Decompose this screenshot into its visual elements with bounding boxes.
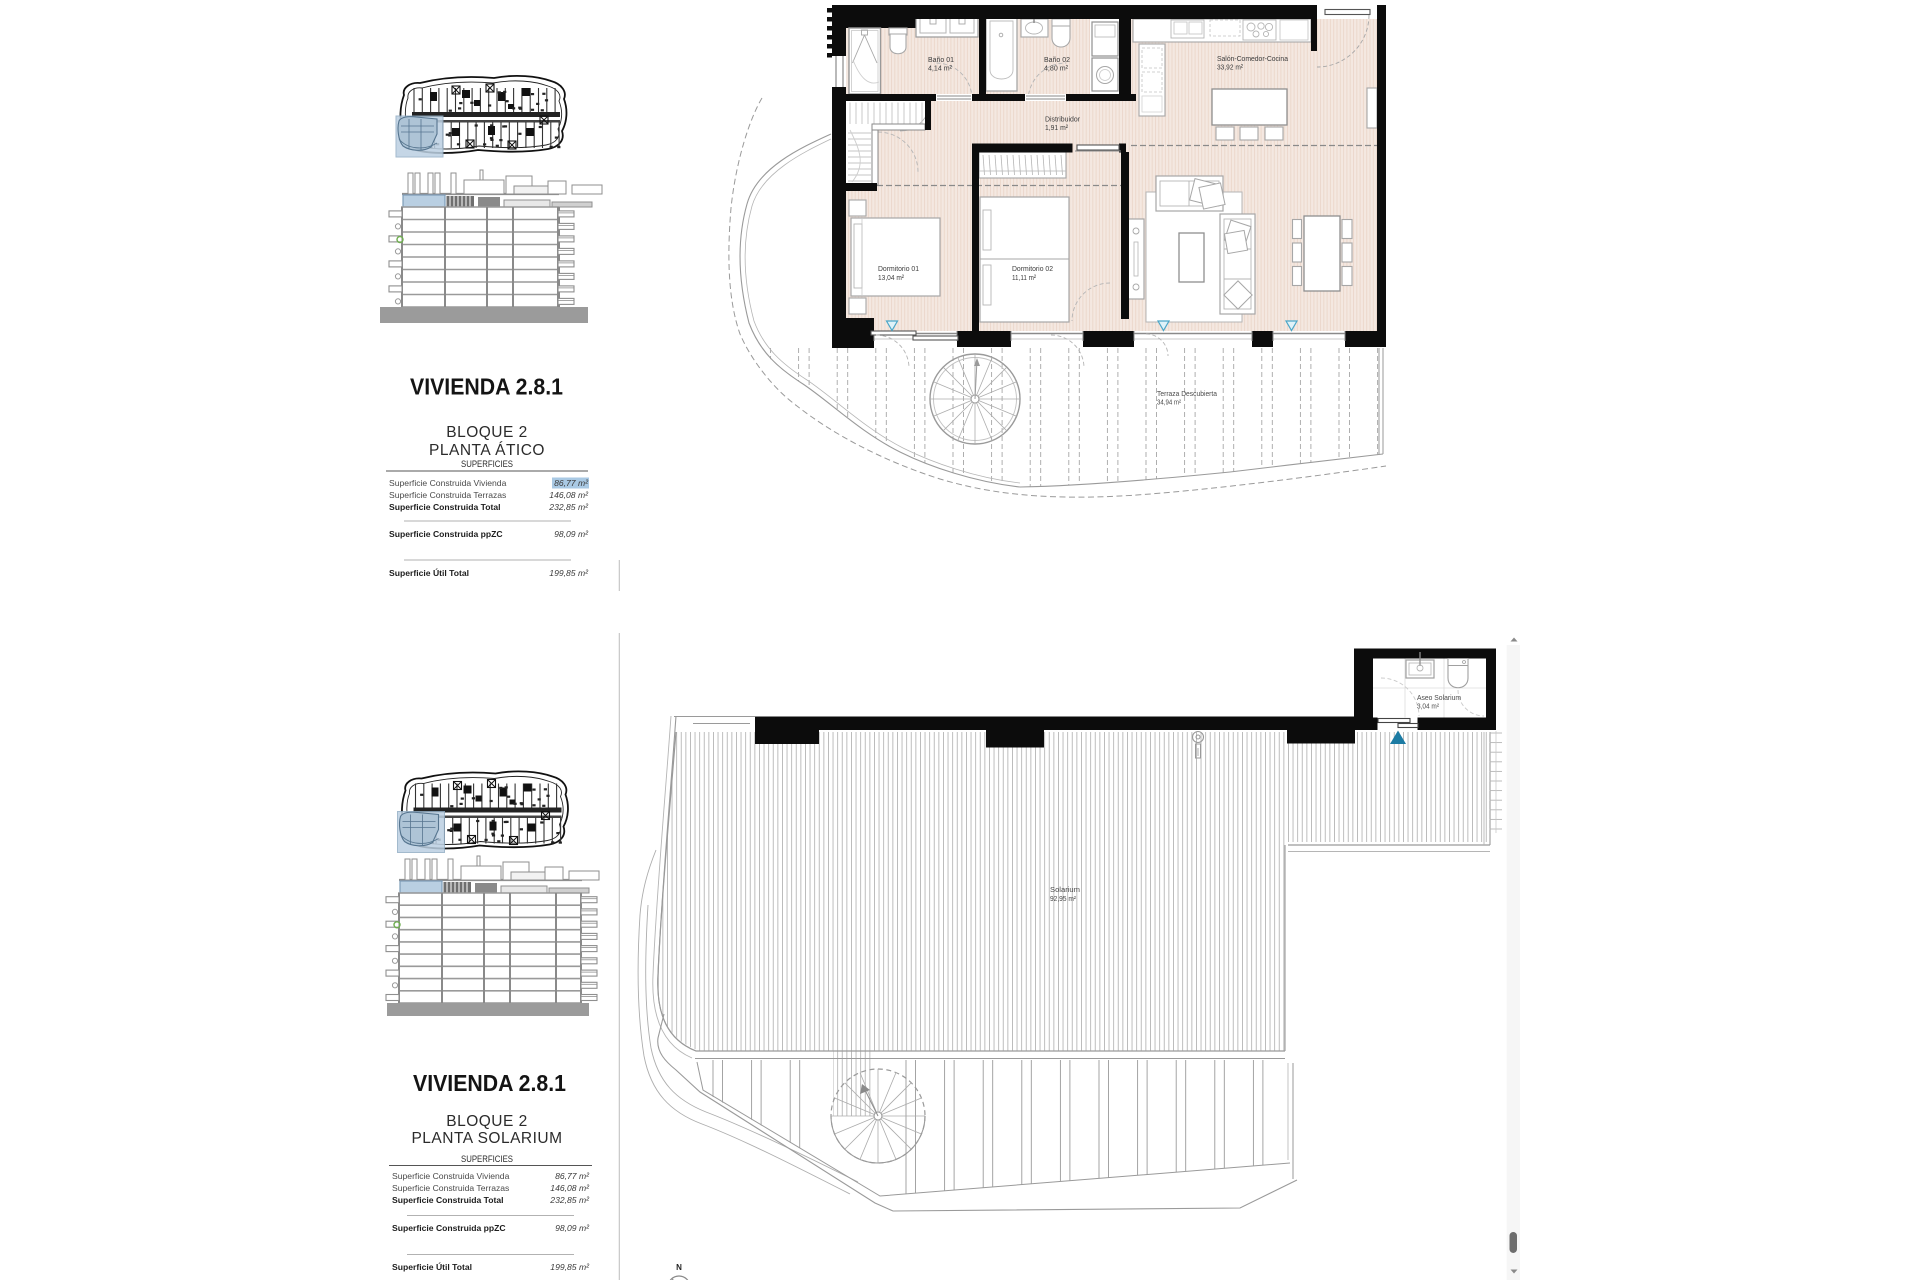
svg-text:3,04 m²: 3,04 m² [1417, 702, 1440, 711]
svg-text:Superficie Construida Terrazas: Superficie Construida Terrazas [389, 490, 506, 500]
svg-text:PLANTA ÁTICO: PLANTA ÁTICO [429, 442, 545, 459]
svg-text:Superficie Construida Terrazas: Superficie Construida Terrazas [392, 1183, 509, 1193]
svg-text:146,08 m²: 146,08 m² [550, 1183, 590, 1193]
svg-text:VIVIENDA 2.8.1: VIVIENDA 2.8.1 [413, 1070, 566, 1096]
svg-text:Solarium: Solarium [1050, 885, 1080, 894]
svg-text:232,85 m²: 232,85 m² [549, 1195, 590, 1205]
svg-text:Superficie Construida Total: Superficie Construida Total [389, 502, 501, 512]
svg-text:33,92 m²: 33,92 m² [1217, 63, 1243, 72]
svg-text:98,09 m²: 98,09 m² [555, 1223, 590, 1233]
svg-text:SUPERFICIES: SUPERFICIES [461, 1154, 513, 1164]
svg-text:86,77 m²: 86,77 m² [554, 478, 589, 488]
svg-text:98,09 m²: 98,09 m² [554, 529, 589, 539]
svg-text:Superficie Construida ppZC: Superficie Construida ppZC [392, 1223, 506, 1233]
svg-text:Superficie Construida ppZC: Superficie Construida ppZC [389, 529, 503, 539]
svg-text:BLOQUE 2: BLOQUE 2 [446, 424, 528, 441]
svg-text:Superficie Útil Total: Superficie Útil Total [392, 1261, 472, 1272]
svg-text:SUPERFICIES: SUPERFICIES [461, 459, 513, 469]
svg-text:4,14 m²: 4,14 m² [928, 64, 952, 73]
svg-text:Superficie Útil Total: Superficie Útil Total [389, 567, 469, 578]
svg-text:Dormitorio 02: Dormitorio 02 [1012, 264, 1053, 273]
svg-text:92,95 m²: 92,95 m² [1050, 894, 1076, 903]
svg-text:199,85 m²: 199,85 m² [549, 568, 589, 578]
svg-text:86,77 m²: 86,77 m² [555, 1171, 590, 1181]
svg-text:Superficie Construida Vivienda: Superficie Construida Vivienda [389, 478, 507, 488]
svg-text:N: N [676, 1263, 682, 1272]
svg-text:199,85 m²: 199,85 m² [550, 1262, 590, 1272]
svg-text:34,94 m²: 34,94 m² [1157, 398, 1181, 407]
svg-text:VIVIENDA 2.8.1: VIVIENDA 2.8.1 [410, 374, 563, 400]
svg-text:13,04 m²: 13,04 m² [878, 273, 904, 282]
svg-text:Superficie Construida Vivienda: Superficie Construida Vivienda [392, 1171, 510, 1181]
svg-text:Dormitorio 01: Dormitorio 01 [878, 264, 919, 273]
svg-text:Superficie Construida Total: Superficie Construida Total [392, 1195, 504, 1205]
svg-text:4,80 m²: 4,80 m² [1044, 64, 1068, 73]
svg-text:11,11 m²: 11,11 m² [1012, 273, 1036, 282]
svg-text:146,08 m²: 146,08 m² [549, 490, 589, 500]
svg-text:1,91 m²: 1,91 m² [1045, 123, 1068, 132]
svg-text:BLOQUE 2: BLOQUE 2 [446, 1113, 528, 1130]
svg-text:PLANTA SOLARIUM: PLANTA SOLARIUM [411, 1130, 562, 1147]
svg-text:232,85 m²: 232,85 m² [548, 502, 589, 512]
